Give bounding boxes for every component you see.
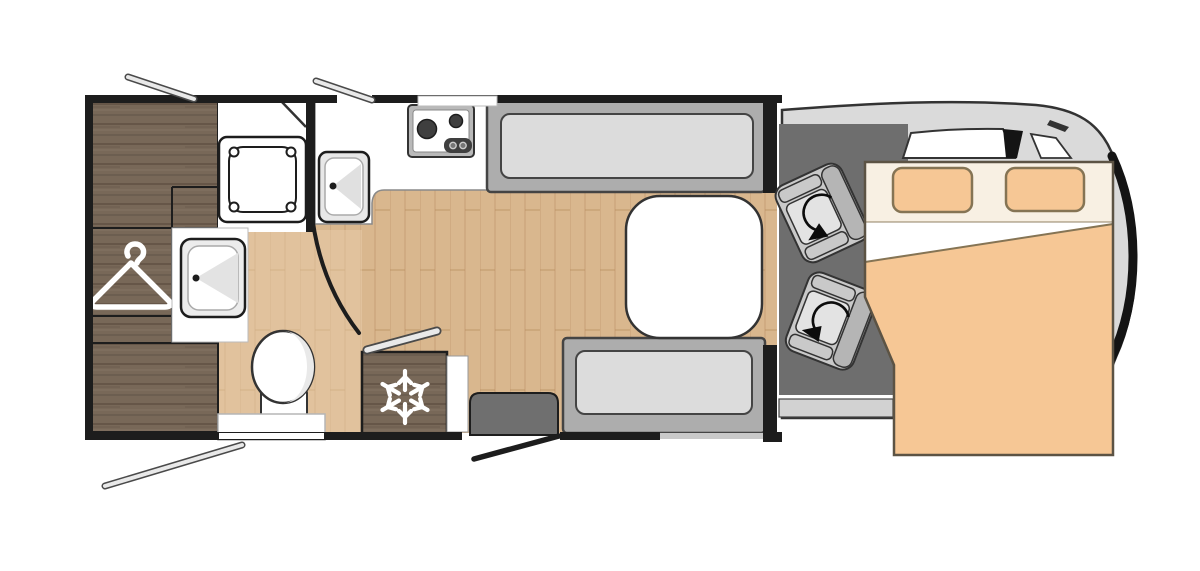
- drop-down-bed: [865, 162, 1113, 455]
- washbasin-unit: [172, 228, 248, 342]
- entry-door-open: [474, 436, 559, 459]
- cab-windshield: [903, 129, 1015, 158]
- burner-large: [418, 120, 437, 139]
- faucet: [193, 275, 200, 282]
- bench-rear-cushion: [576, 351, 752, 414]
- fridge-door-edge: [447, 356, 468, 432]
- rooflight-strip: [418, 96, 497, 106]
- burner-small: [450, 115, 463, 128]
- drawer-unit: [91, 316, 172, 343]
- overhead-cabinet: [91, 100, 218, 228]
- window-bottom-bench: [660, 433, 763, 439]
- bed-pillow-left: [893, 168, 972, 212]
- toilet: [252, 331, 314, 418]
- motorhome-floor-plan: [0, 0, 1200, 571]
- wall-bottom-mid: [560, 432, 660, 440]
- entry-step: [470, 393, 558, 435]
- cab-door-sill: [779, 399, 893, 417]
- lower-cabinet: [91, 343, 218, 432]
- wall-left: [85, 95, 93, 440]
- wall-right-bottom: [763, 345, 777, 440]
- window-bottom-rear-open: [105, 445, 242, 486]
- shower-room: [218, 100, 306, 232]
- faucet: [330, 183, 337, 190]
- kitchen-sink: [319, 152, 369, 222]
- dinette-table: [626, 196, 762, 338]
- refrigerator: [362, 352, 468, 437]
- wardrobe: [91, 228, 172, 316]
- bench-front-cushion: [501, 114, 753, 178]
- bathroom-window-opening: [219, 433, 324, 439]
- bed-pillow-right: [1006, 168, 1084, 211]
- bed-mattress: [865, 224, 1113, 455]
- hob-controls: [444, 138, 472, 153]
- gas-hob: [408, 105, 474, 157]
- floor-plan-canvas: [0, 0, 1200, 571]
- wall-right-top: [763, 95, 777, 193]
- shower-tray-inner: [229, 147, 296, 212]
